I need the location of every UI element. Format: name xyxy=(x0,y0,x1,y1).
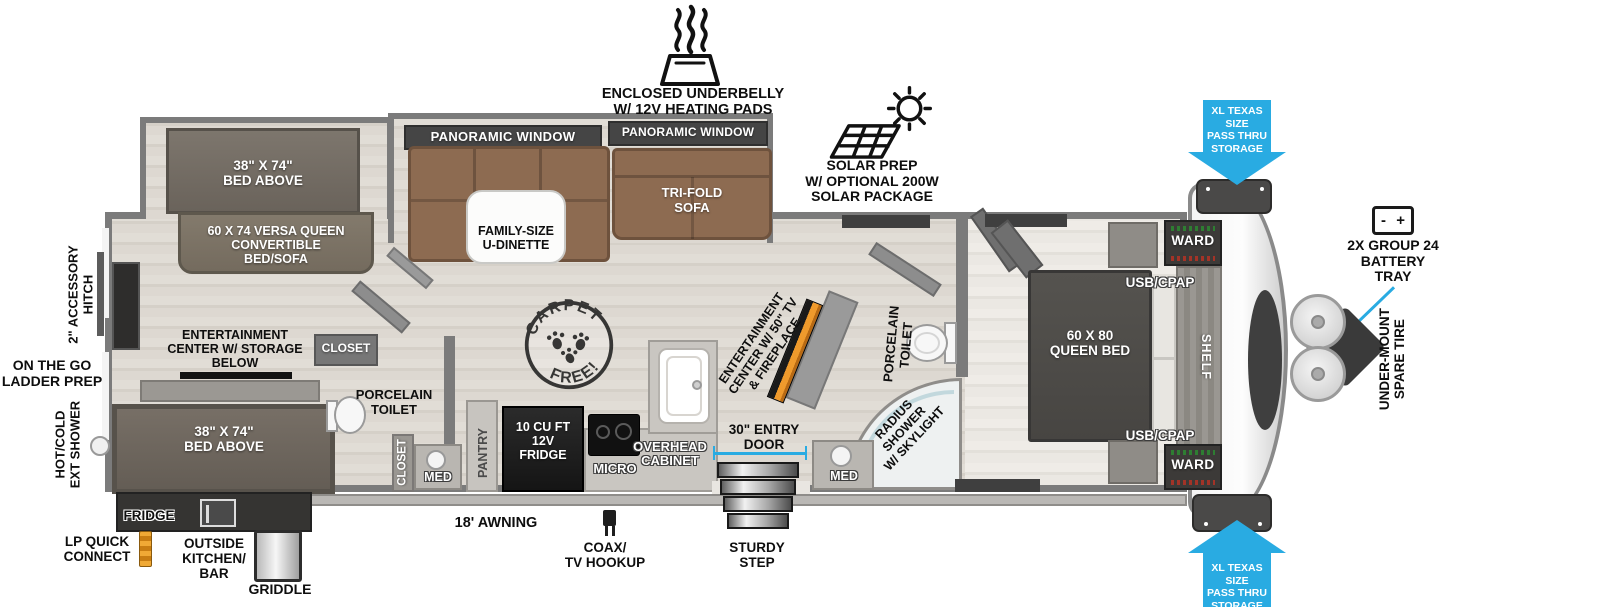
solar-panel-icon xyxy=(828,86,932,164)
entertainment-rear-label: ENTERTAINMENT CENTER W/ STORAGE BELOW xyxy=(148,328,322,370)
battery-minus: - xyxy=(1381,212,1386,229)
med-right-sink xyxy=(830,445,852,467)
tri-fold-sofa-label: TRI-FOLD SOFA xyxy=(618,186,766,215)
pass-thru-bottom-label: XL TEXAS SIZE PASS THRU STORAGE xyxy=(1202,562,1272,609)
med-left-label: MED xyxy=(416,471,460,485)
floorplan-canvas: 38" X 74" BED ABOVE 60 X 74 VERSA QUEEN … xyxy=(0,0,1600,609)
outside-kitchen-label: OUTSIDE KITCHEN/ BAR xyxy=(170,536,258,581)
wardrobe-bottom-label: WARD xyxy=(1164,457,1222,472)
usb-cpap-top-label: USB/CPAP xyxy=(1120,276,1200,291)
spare-tire-label: UNDER-MOUNT SPARE TIRE xyxy=(1377,303,1407,415)
window-bottom-bedroom xyxy=(955,479,1040,492)
med-right-label: MED xyxy=(816,470,872,484)
rear-bunk-top-label: 38" X 74" BED ABOVE xyxy=(208,158,318,188)
battery-icon: - + xyxy=(1372,206,1414,235)
ext-shower-knob xyxy=(90,436,110,456)
fridge-label: FRIDGE xyxy=(110,508,188,523)
faucet-icon xyxy=(692,380,702,390)
entry-steps xyxy=(716,462,800,536)
kitchen-sink xyxy=(658,348,710,424)
sturdy-step-label: STURDY STEP xyxy=(713,540,801,570)
toilet-left-label: PORCELAIN TOILET xyxy=(350,388,438,417)
front-bunk-label: 38" X 74" BED ABOVE xyxy=(176,424,272,454)
nightstand-top xyxy=(1108,222,1158,268)
panoramic-window-right-label: PANORAMIC WINDOW xyxy=(610,126,766,139)
pass-thru-arrow-top: XL TEXAS SIZE PASS THRU STORAGE xyxy=(1188,100,1286,186)
shelf-label: SHELF xyxy=(1199,329,1213,385)
spare-tire-1 xyxy=(1290,294,1346,350)
battery-tray-label: 2X GROUP 24 BATTERY TRAY xyxy=(1340,238,1446,285)
wardrobe-top-label: WARD xyxy=(1164,233,1222,248)
bed-pillows xyxy=(1152,278,1176,436)
entry-door-measure-line xyxy=(714,452,806,455)
spare-tire-2 xyxy=(1290,346,1346,402)
entry-door-label: 30" ENTRY DOOR xyxy=(716,422,812,452)
pass-thru-top-label: XL TEXAS SIZE PASS THRU STORAGE xyxy=(1202,105,1272,155)
griddle-box xyxy=(254,530,302,582)
panoramic-window-left-label: PANORAMIC WINDOW xyxy=(406,130,600,145)
rear-wall-tv xyxy=(112,262,140,350)
awning-label: 18' AWNING xyxy=(440,515,552,531)
underbelly-label: ENCLOSED UNDERBELLY W/ 12V HEATING PADS xyxy=(580,86,806,118)
closet-upper-label: CLOSET xyxy=(314,342,378,355)
griddle-label: GRIDDLE xyxy=(238,582,322,598)
usb-cpap-bottom-label: USB/CPAP xyxy=(1120,429,1200,444)
nightstand-bottom xyxy=(1108,440,1158,484)
battery-plus: + xyxy=(1396,212,1405,229)
outside-fridge-icon xyxy=(200,499,236,527)
hitch-receiver-bar xyxy=(97,252,104,336)
carpet-free-stamp: CARPET FREE! xyxy=(513,289,624,400)
versa-queen-label: 60 X 74 VERSA QUEEN CONVERTIBLE BED/SOFA xyxy=(196,224,356,266)
accessory-hitch-label: 2" ACCESSORY HITCH xyxy=(66,242,95,348)
ext-shower-label: HOT/COLD EXT SHOWER xyxy=(53,399,82,491)
heating-pads-icon xyxy=(648,4,732,86)
bath-right-wall xyxy=(956,219,968,377)
solar-prep-label: SOLAR PREP W/ OPTIONAL 200W SOLAR PACKAG… xyxy=(788,158,956,205)
overhead-cabinet-label: OVERHEAD CABINET xyxy=(620,440,720,469)
u-dinette-label: FAMILY-SIZE U-DINETTE xyxy=(460,224,572,252)
pantry-label: PANTRY xyxy=(476,424,490,482)
lp-quick-connect-label: LP QUICK CONNECT xyxy=(56,534,138,564)
med-left-sink xyxy=(426,450,446,470)
front-cap-window xyxy=(1248,290,1282,430)
window-top-kitchenwall xyxy=(842,215,930,228)
closet-lower-label: CLOSET xyxy=(397,433,410,491)
entertainment-rear-cabinet xyxy=(140,380,320,402)
fridge-12v-label: 10 CU FT 12V FRIDGE xyxy=(504,420,582,462)
window-top-bedroom xyxy=(985,214,1067,227)
entertainment-rear-shelf-line xyxy=(180,372,292,379)
coax-label: COAX/ TV HOOKUP xyxy=(550,540,660,570)
queen-bed-label: 60 X 80 QUEEN BED xyxy=(1036,328,1144,358)
carpet-free-stamp-icon: CARPET FREE! xyxy=(513,289,624,400)
ladder-prep-label: ON THE GO LADDER PREP xyxy=(0,358,104,389)
pass-thru-arrow-bottom: XL TEXAS SIZE PASS THRU STORAGE xyxy=(1188,520,1286,608)
lp-quick-connect-icon xyxy=(139,531,152,567)
coax-plug-icon xyxy=(601,510,619,538)
